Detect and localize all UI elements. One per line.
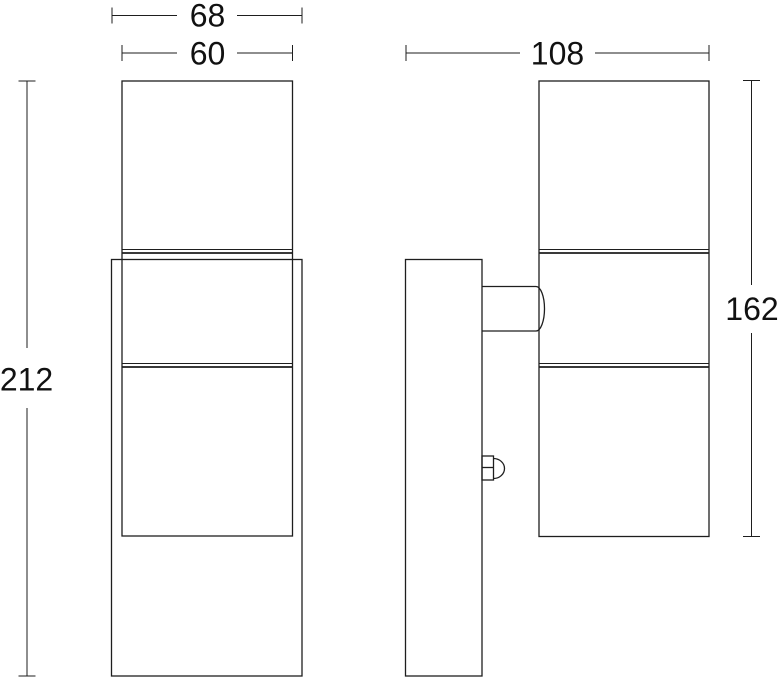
front-body-width-label: 60 xyxy=(190,36,226,72)
side-depth-dimension: 108 xyxy=(406,36,709,72)
side-body-height-label: 162 xyxy=(725,291,778,327)
side-body-height-dimension: 162 xyxy=(725,81,778,537)
side-view-dimensions: 108 162 xyxy=(406,36,779,537)
dimension-drawing-canvas: 68 60 212 xyxy=(0,0,779,678)
front-view xyxy=(112,81,303,676)
side-wallplate-outline xyxy=(406,260,483,677)
side-view xyxy=(406,81,710,676)
front-view-dimensions: 68 60 212 xyxy=(0,0,302,676)
screw-dome-cap xyxy=(494,459,505,479)
luminaire-dimension-drawing: 68 60 212 xyxy=(0,0,779,678)
front-outer-width-dimension: 68 xyxy=(112,0,302,34)
front-outer-width-label: 68 xyxy=(190,0,226,34)
front-backplate-outline xyxy=(112,260,303,677)
side-body-outline xyxy=(539,81,709,537)
side-mounting-arm xyxy=(482,287,545,332)
front-total-height-dimension: 212 xyxy=(0,81,53,676)
front-total-height-label: 212 xyxy=(0,362,53,398)
front-body-outline xyxy=(122,81,293,536)
arm-round-end xyxy=(536,287,545,332)
side-depth-label: 108 xyxy=(531,36,584,72)
side-screw-detail xyxy=(482,456,505,480)
front-body-width-dimension: 60 xyxy=(122,36,293,72)
